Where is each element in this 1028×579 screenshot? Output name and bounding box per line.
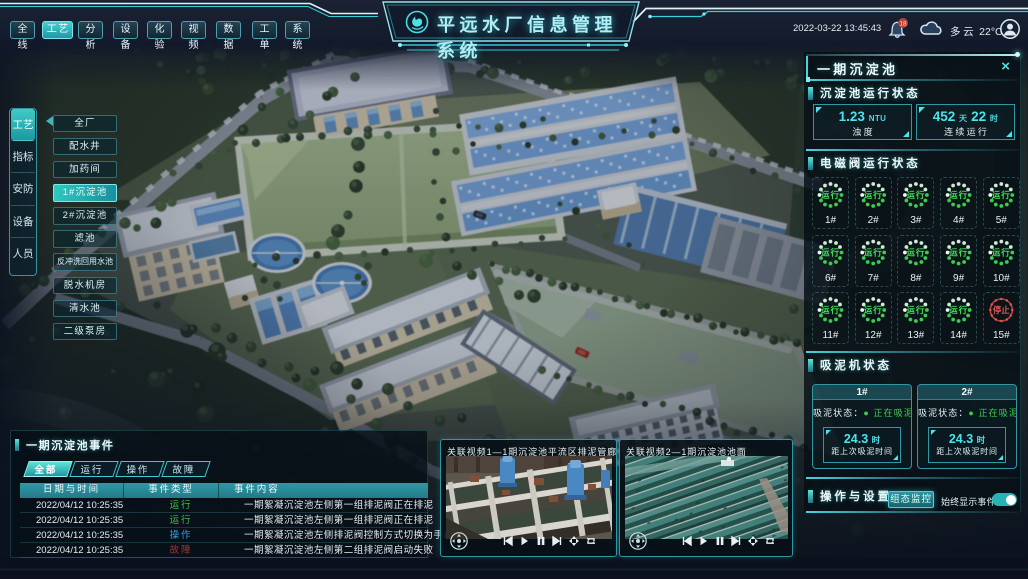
svg-text:运行: 运行 [992, 248, 1011, 258]
svg-text:运行: 运行 [992, 190, 1011, 200]
svg-text:运行: 运行 [949, 305, 968, 315]
svg-text:运行: 运行 [949, 190, 968, 200]
svg-text:运行: 运行 [864, 190, 883, 200]
svg-text:运行: 运行 [821, 248, 840, 258]
svg-text:运行: 运行 [821, 305, 840, 315]
svg-text:停止: 停止 [993, 305, 1011, 315]
svg-text:运行: 运行 [906, 248, 925, 258]
svg-text:18: 18 [899, 20, 907, 27]
svg-text:运行: 运行 [906, 190, 925, 200]
svg-text:运行: 运行 [906, 305, 925, 315]
svg-text:运行: 运行 [864, 248, 883, 258]
svg-text:运行: 运行 [821, 190, 840, 200]
svg-text:运行: 运行 [864, 305, 883, 315]
svg-text:运行: 运行 [949, 248, 968, 258]
